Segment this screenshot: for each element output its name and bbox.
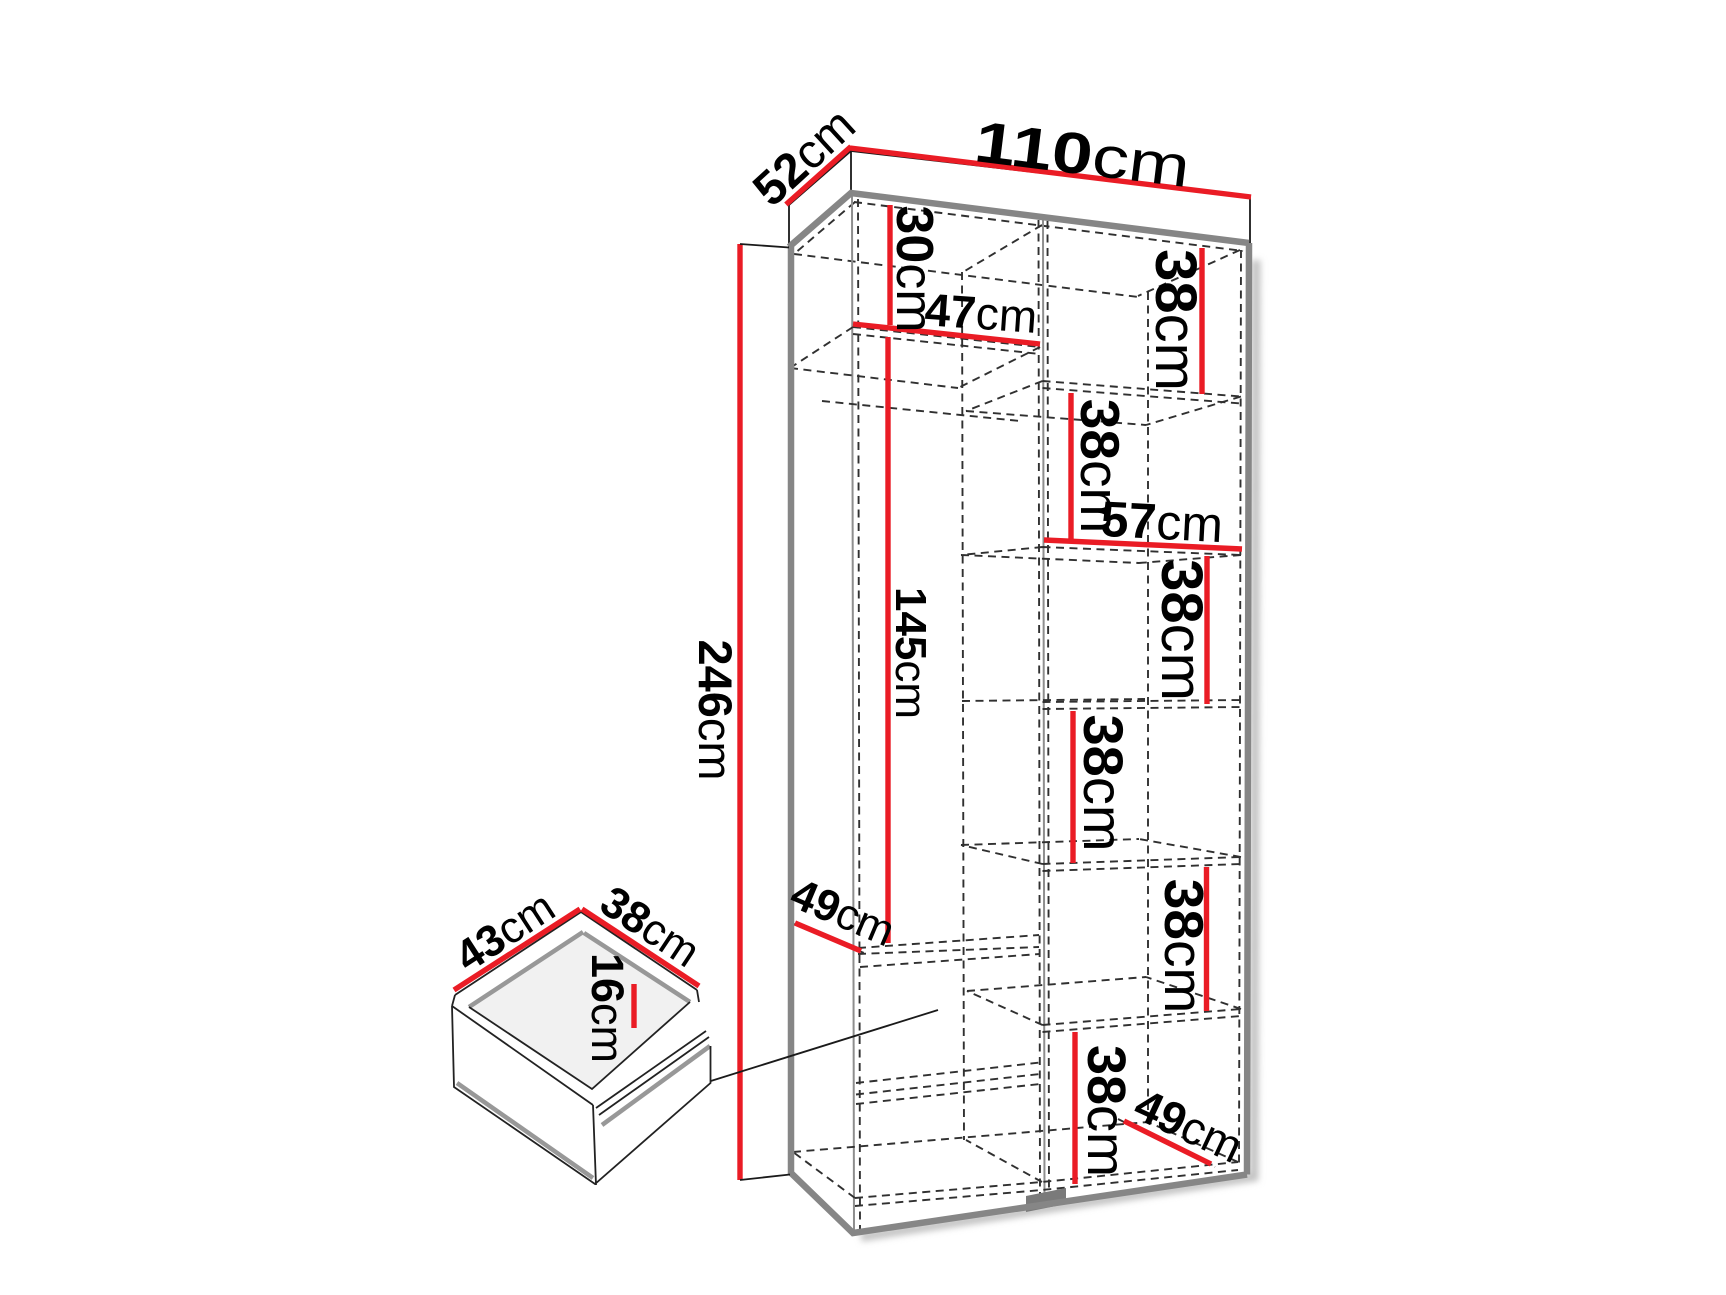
svg-text:57cm: 57cm bbox=[1099, 491, 1224, 553]
svg-text:38cm: 38cm bbox=[1143, 249, 1208, 391]
svg-text:38cm: 38cm bbox=[1153, 879, 1215, 1014]
svg-text:16cm: 16cm bbox=[582, 953, 633, 1063]
svg-text:38cm: 38cm bbox=[1149, 559, 1214, 701]
svg-text:38cm: 38cm bbox=[1076, 1045, 1136, 1177]
svg-text:145cm: 145cm bbox=[886, 587, 935, 719]
svg-text:38cm: 38cm bbox=[1072, 715, 1135, 852]
svg-text:47cm: 47cm bbox=[923, 283, 1039, 343]
svg-text:246cm: 246cm bbox=[689, 639, 742, 780]
